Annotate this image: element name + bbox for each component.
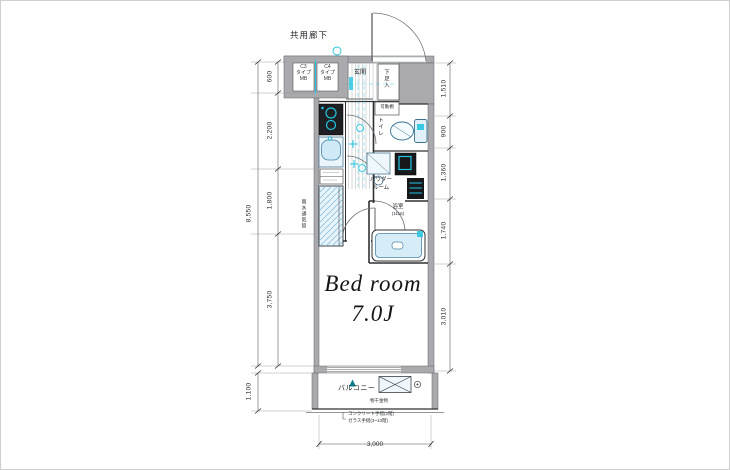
powder-room-fixtures <box>367 153 424 199</box>
powder-room-label-line1: パウダー <box>363 177 399 183</box>
laundry-hardware-label: 物干金物 <box>363 399 395 404</box>
bathroom-label: 浴室 <box>383 204 413 210</box>
mb-left-line3: MB <box>293 76 314 82</box>
bedroom-label-line1: Bed room <box>303 271 443 297</box>
dim-left-2200: 2,200 <box>267 109 274 153</box>
powder-room-label-line2: ルーム <box>363 185 399 191</box>
bathtub-icon <box>372 230 425 261</box>
water-heater-icon <box>407 178 424 199</box>
dim-left-600: 600 <box>267 55 274 99</box>
dim-left-1800: 1,800 <box>267 179 274 223</box>
shoe-cabinet-label: 下足入 <box>383 69 389 99</box>
bedroom-door-arc <box>342 208 375 241</box>
toilet-label: トイレ <box>377 117 383 145</box>
pipe-shaft-block <box>399 63 434 104</box>
dim-right-1740: 1,740 <box>441 209 448 253</box>
railing-note-line2: ガラス手摺(3~13階) <box>348 419 388 424</box>
entrance-label: 玄関 <box>348 70 372 77</box>
meter-box-left-label: C3 タイプ MB <box>293 64 314 82</box>
dim-balcony-depth: 1,100 <box>246 370 253 414</box>
corridor-label: 共用廊下 <box>277 31 341 40</box>
entrance-door-arc <box>373 13 426 61</box>
dim-bottom-width: 3,000 <box>353 441 397 448</box>
bedroom-label-line2: 7.0J <box>303 301 443 327</box>
dim-right-1510: 1,510 <box>441 67 448 111</box>
dim-right-900: 900 <box>441 110 448 154</box>
mb-right-line3: MB <box>317 76 338 82</box>
balcony-label: バルコニー <box>338 385 380 393</box>
kitchen <box>319 104 343 246</box>
floorplan-image: 共用廊下 C3 タイプ MB C4 タイプ MB 玄関 下足入 可動棚 トイレ … <box>0 0 730 470</box>
dim-left-3750: 3,750 <box>267 278 274 322</box>
toilet-fixture <box>391 120 428 143</box>
bathroom-size-label: (1116) <box>381 212 415 217</box>
dim-left-total: 8,550 <box>246 192 253 236</box>
dim-right-1360: 1,360 <box>441 151 448 195</box>
balcony-window <box>327 367 401 373</box>
vent-pipe-label: 雨水通気管 <box>300 199 306 267</box>
dim-right-3010: 3,010 <box>441 295 448 339</box>
note-leader-line <box>343 412 346 419</box>
movable-shelf-label: 可動棚 <box>375 105 399 110</box>
railing-note-line1: コンクリート手摺(2階) <box>348 412 394 417</box>
entrance-doorway <box>373 57 426 63</box>
meter-box-right-label: C4 タイプ MB <box>317 64 338 82</box>
